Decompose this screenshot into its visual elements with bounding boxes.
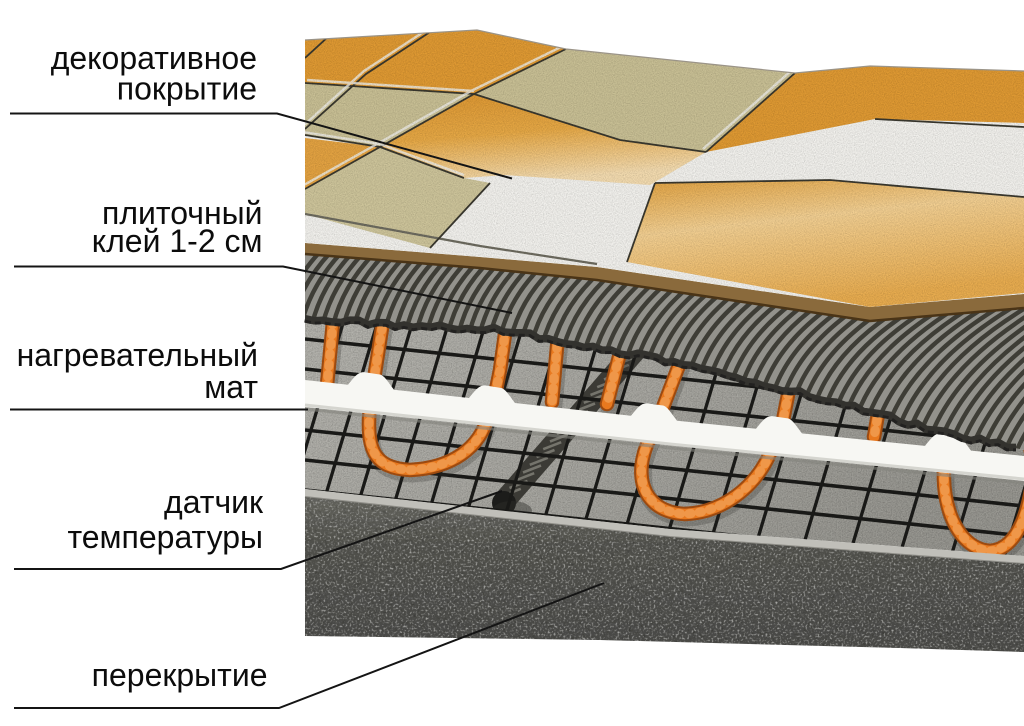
svg-text:перекрытие: перекрытие xyxy=(92,657,268,693)
svg-text:покрытие: покрытие xyxy=(117,71,257,107)
svg-text:мат: мат xyxy=(204,369,258,405)
svg-text:температуры: температуры xyxy=(67,519,263,555)
svg-text:клей 1-2 см: клей 1-2 см xyxy=(92,223,263,259)
svg-text:нагревательный: нагревательный xyxy=(17,337,258,373)
svg-text:датчик: датчик xyxy=(164,484,264,520)
